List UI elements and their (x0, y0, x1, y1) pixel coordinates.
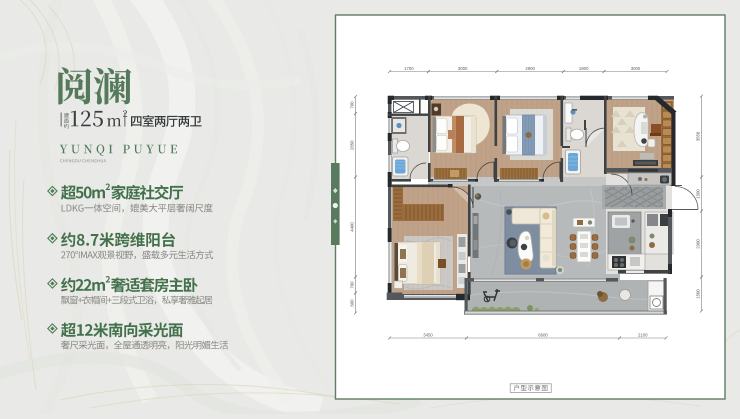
svg-text:6600: 6600 (538, 332, 548, 337)
svg-text:600: 600 (349, 299, 354, 307)
svg-text:1500: 1500 (695, 289, 700, 299)
svg-text:2900: 2900 (525, 66, 535, 71)
svg-text:1700: 1700 (404, 66, 414, 71)
svg-text:700: 700 (349, 101, 354, 109)
svg-text:3550: 3550 (695, 131, 700, 141)
svg-text:2900: 2900 (695, 239, 700, 249)
svg-text:1500: 1500 (695, 189, 700, 199)
svg-text:2850: 2850 (349, 140, 354, 150)
svg-text:4400: 4400 (349, 222, 354, 232)
svg-text:1800: 1800 (579, 66, 589, 71)
svg-text:3000: 3000 (458, 66, 468, 71)
svg-text:2100: 2100 (638, 332, 648, 337)
svg-text:3000: 3000 (631, 66, 641, 71)
svg-text:3450: 3450 (423, 332, 433, 337)
svg-text:700: 700 (349, 281, 354, 289)
